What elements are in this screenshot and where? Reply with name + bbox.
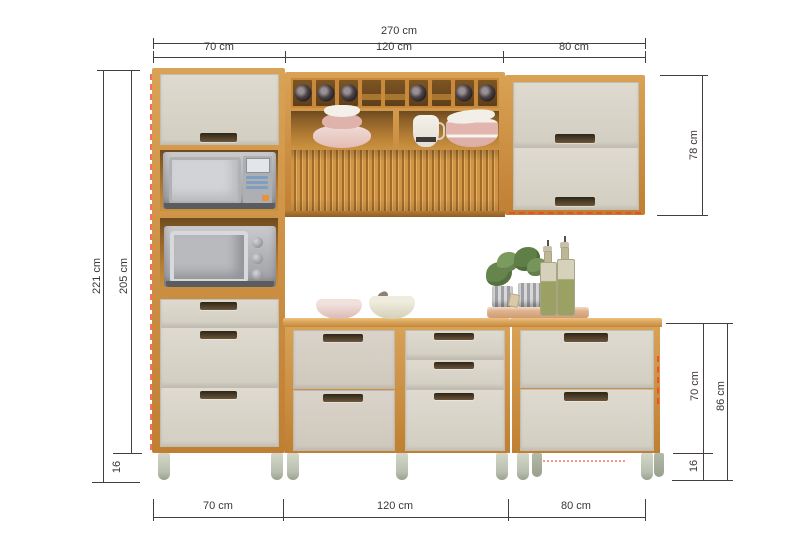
- dim-tick: [660, 75, 708, 76]
- herb-pot-icon: [518, 283, 541, 307]
- dim-label-bottom-right: 80 cm: [561, 500, 591, 512]
- dim-tick: [666, 323, 733, 324]
- wine-bottle-icon: [317, 85, 334, 102]
- right-base-countertop: [510, 318, 662, 327]
- microwave-buttons: [246, 181, 268, 184]
- dim-tick: [153, 51, 154, 63]
- bowl-icon: [369, 296, 415, 319]
- microwave-base: [164, 203, 275, 209]
- cabinet-foot: [287, 453, 299, 480]
- dim-label-top-left: 70 cm: [204, 41, 234, 53]
- dim-tick: [283, 499, 284, 521]
- wine-rack-cell: [432, 80, 451, 106]
- cabinet-foot: [496, 453, 508, 480]
- cabinet-foot: [271, 453, 283, 480]
- wine-rack-cell: [455, 80, 474, 106]
- oil-bottle-icon: [557, 259, 575, 316]
- dim-label-top-mid: 120 cm: [376, 41, 412, 53]
- hutch-bottom-edge: [285, 211, 505, 217]
- dim-line-right-upper: [702, 75, 703, 215]
- microwave-start-button: [262, 195, 269, 201]
- dim-label-bottom-left: 70 cm: [203, 500, 233, 512]
- wine-rack-cell: [293, 80, 312, 106]
- microwave-knob: [252, 237, 263, 248]
- cabinet-foot: [517, 453, 529, 480]
- wine-rack-cell: [409, 80, 428, 106]
- dim-tick: [645, 38, 646, 49]
- dim-tick: [645, 499, 646, 521]
- microwave-buttons: [246, 176, 268, 179]
- microwave-window: [169, 157, 241, 204]
- dim-label-right-base-body: 70 cm: [689, 371, 701, 401]
- wine-bottle-icon: [479, 85, 496, 102]
- dim-label-left-body: 205 cm: [118, 258, 130, 294]
- wine-bottle-icon: [294, 85, 311, 102]
- red-edge-marker: [657, 356, 659, 404]
- drawer-handle: [200, 391, 237, 399]
- wine-rack-cell: [385, 80, 404, 106]
- dim-tick: [285, 51, 286, 63]
- cabinet-foot: [396, 453, 408, 480]
- cabinet-foot: [654, 453, 664, 477]
- hutch-slatted-door: [291, 150, 499, 212]
- oil-bottle-icon: [540, 262, 557, 316]
- dim-label-left-total: 221 cm: [91, 258, 103, 294]
- dim-tick: [672, 480, 733, 481]
- door-handle: [555, 134, 595, 143]
- wine-rack-cell: [362, 80, 381, 106]
- wine-bottle-icon: [340, 85, 357, 102]
- drawer-handle: [434, 393, 474, 400]
- wine-rack-cell: [339, 80, 358, 106]
- pitcher-band: [416, 137, 436, 142]
- dim-line-right-base-total: [727, 323, 728, 480]
- drawer-handle: [434, 333, 474, 340]
- drawer-handle: [200, 331, 237, 339]
- dim-label-bottom-mid: 120 cm: [377, 500, 413, 512]
- dim-tick: [657, 215, 708, 216]
- microwave-window: [170, 231, 248, 283]
- dim-tick: [153, 38, 154, 49]
- microwave-knob: [252, 269, 263, 280]
- red-edge-marker: [150, 74, 152, 450]
- wine-rack: [291, 78, 499, 108]
- door-handle: [555, 197, 595, 206]
- dim-label-top-right: 80 cm: [559, 41, 589, 53]
- dim-tick: [673, 453, 713, 454]
- dim-label-right-feet: 16: [688, 460, 700, 472]
- dim-label-left-feet: 16: [111, 461, 123, 473]
- dim-tick: [508, 499, 509, 521]
- dim-tick: [113, 453, 142, 454]
- wine-rack-cell: [316, 80, 335, 106]
- dim-tick: [645, 51, 646, 63]
- drawer-handle: [434, 362, 474, 369]
- cabinet-foot: [641, 453, 653, 480]
- wine-bottle-icon: [410, 85, 427, 102]
- wine-bottle-icon: [456, 85, 473, 102]
- dim-line-bottom: [153, 517, 645, 518]
- bowl-stack-icon: [324, 105, 360, 117]
- wine-rack-rail: [362, 94, 381, 100]
- dim-label-right-upper: 78 cm: [688, 130, 700, 160]
- door-handle: [200, 133, 237, 142]
- red-edge-marker: [509, 212, 641, 214]
- cabinet-foot: [532, 453, 542, 477]
- drawer-handle: [564, 392, 608, 401]
- kitchen-dimension-diagram: 270 cm 70 cm 120 cm 80 cm 221 cm 205 cm …: [0, 0, 800, 533]
- microwave-display: [246, 158, 270, 173]
- drawer-handle: [564, 333, 608, 342]
- dim-tick: [97, 70, 140, 71]
- dim-tick: [503, 51, 504, 63]
- wine-rack-cell: [478, 80, 497, 106]
- dim-line-left-total: [103, 70, 104, 482]
- drawer-handle: [200, 302, 237, 310]
- dim-tick: [153, 499, 154, 521]
- dim-tick: [92, 482, 140, 483]
- dim-line-left-body: [131, 70, 132, 453]
- drawer-handle: [323, 334, 363, 342]
- microwave-knob: [252, 253, 263, 264]
- drawer-handle: [323, 394, 363, 402]
- microwave-buttons: [246, 186, 268, 189]
- dim-line-right-base-body: [703, 323, 704, 480]
- red-edge-marker: [540, 460, 625, 462]
- wine-rack-rail: [385, 94, 404, 100]
- microwave-base: [166, 281, 274, 287]
- wine-rack-rail: [432, 94, 451, 100]
- dim-label-top-total: 270 cm: [381, 25, 417, 37]
- pitcher-icon: [413, 115, 439, 147]
- dim-line-top-segments: [153, 57, 645, 58]
- dim-label-right-base-total: 86 cm: [715, 381, 727, 411]
- bowl-icon: [316, 299, 362, 319]
- middle-base-countertop: [283, 318, 510, 327]
- cabinet-foot: [158, 453, 170, 480]
